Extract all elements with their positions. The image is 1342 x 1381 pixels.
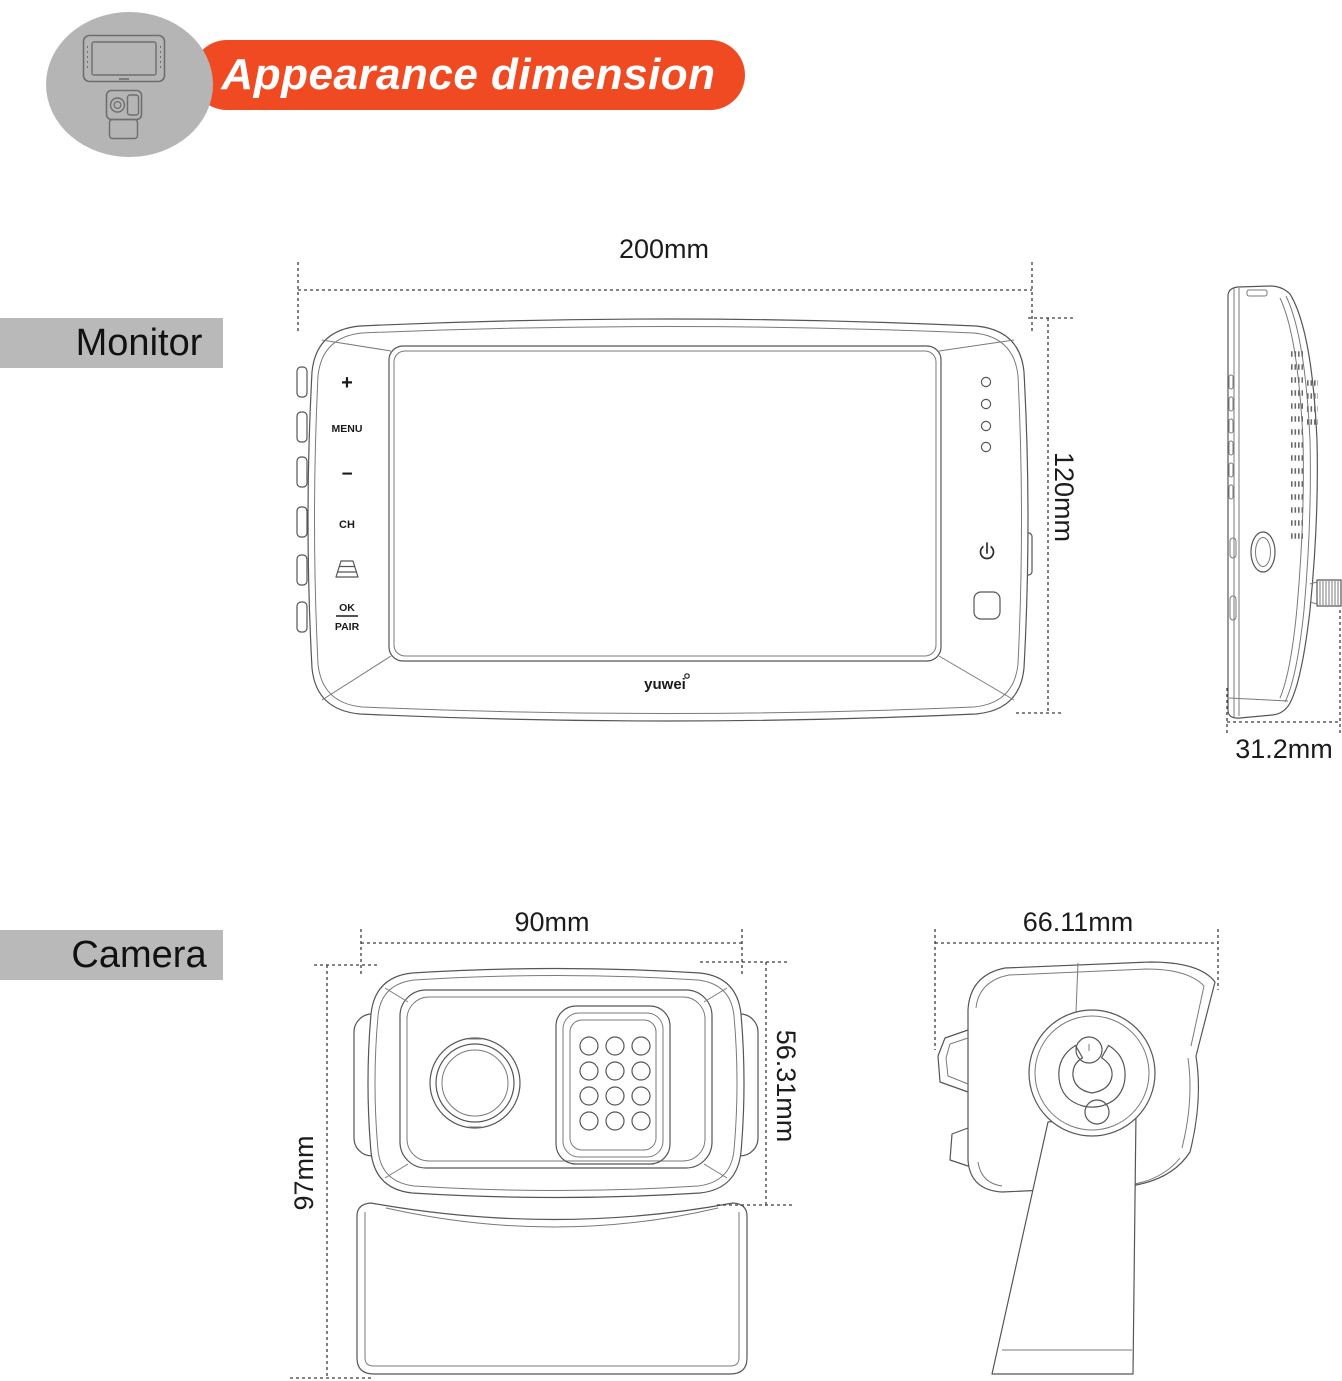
button-volume-down: − (341, 464, 352, 485)
dim-camera-height: 97mm (289, 1135, 319, 1210)
dim-monitor-depth: 31.2mm (1235, 734, 1333, 764)
camera-icon (105, 89, 143, 141)
dimension-drawings: 200mm 120mm + (0, 0, 1342, 1381)
monitor-icon (82, 34, 166, 84)
camera-side-view: 66.11mm (935, 907, 1218, 1374)
title-banner: Appearance dimension (192, 40, 745, 110)
mount-disc (1029, 1010, 1155, 1136)
dim-monitor-height: 120mm (1049, 452, 1079, 542)
dim-camera-width: 90mm (514, 907, 589, 937)
dim-camera-depth: 66.11mm (1023, 907, 1134, 937)
page-title: Appearance dimension (221, 50, 715, 100)
antenna-connector (1310, 580, 1341, 606)
dim-camera-lens-height: 56.31mm (771, 1030, 801, 1143)
monitor-front-view: 200mm 120mm + (297, 234, 1079, 721)
page: Appearance dimension Monitor Camera 200m… (0, 0, 1342, 1381)
brand-logo: yuwei (644, 676, 686, 693)
button-channel: CH (339, 519, 355, 531)
monitor-side-view: 31.2mm (1227, 286, 1341, 764)
button-volume-up: + (341, 372, 353, 394)
button-menu: MENU (332, 423, 363, 435)
dim-monitor-width: 200mm (619, 234, 709, 264)
button-pair: PAIR (335, 621, 360, 633)
button-ok: OK (339, 602, 355, 614)
camera-front-view: 90mm 97mm 56.31mm (289, 907, 801, 1378)
